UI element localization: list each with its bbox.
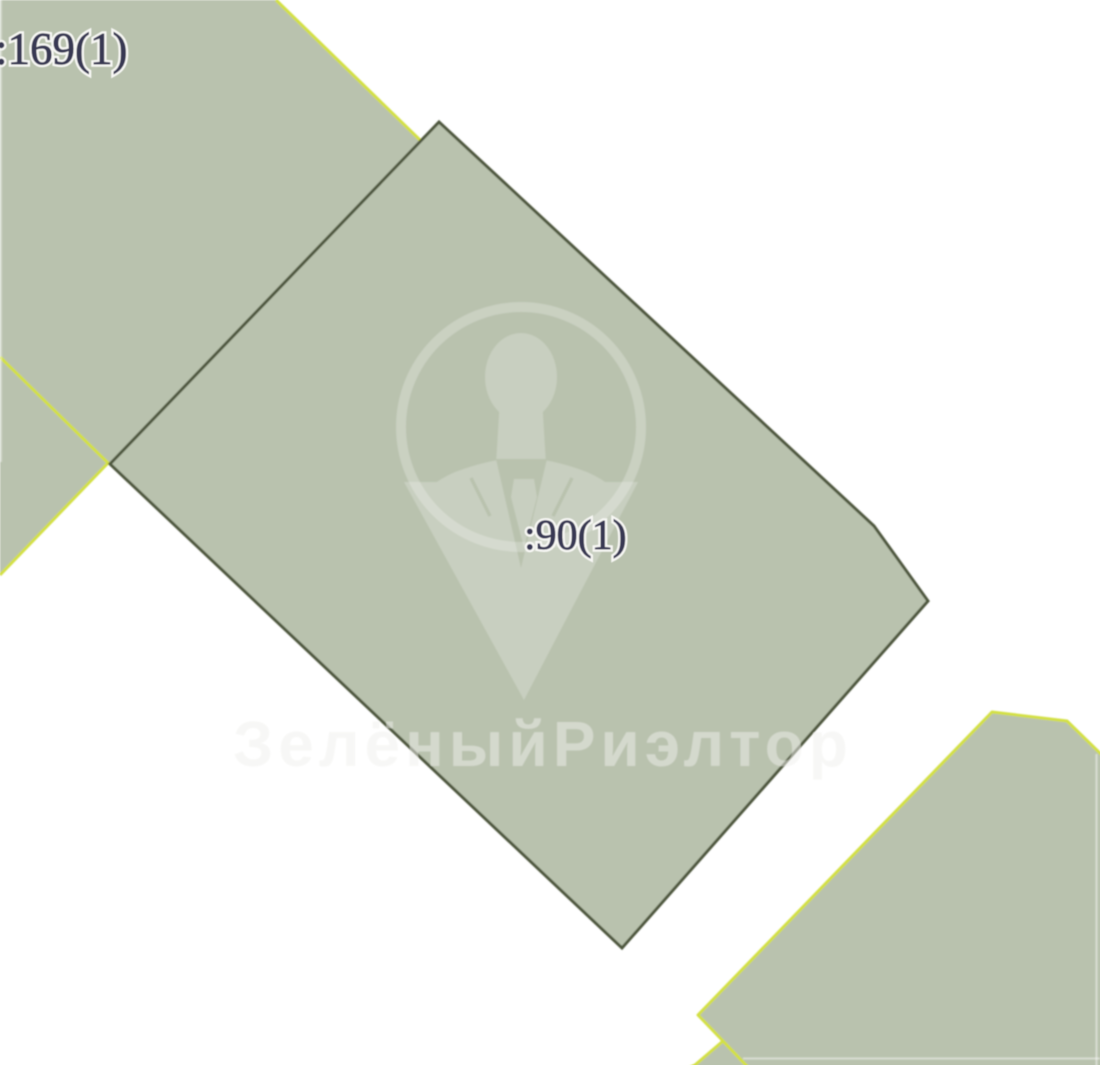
svg-text::169(1): :169(1): [0, 24, 127, 74]
svg-text::90(1): :90(1): [524, 513, 627, 559]
svg-text:ЗелёныйРиэлтор: ЗелёныйРиэлтор: [233, 708, 853, 780]
